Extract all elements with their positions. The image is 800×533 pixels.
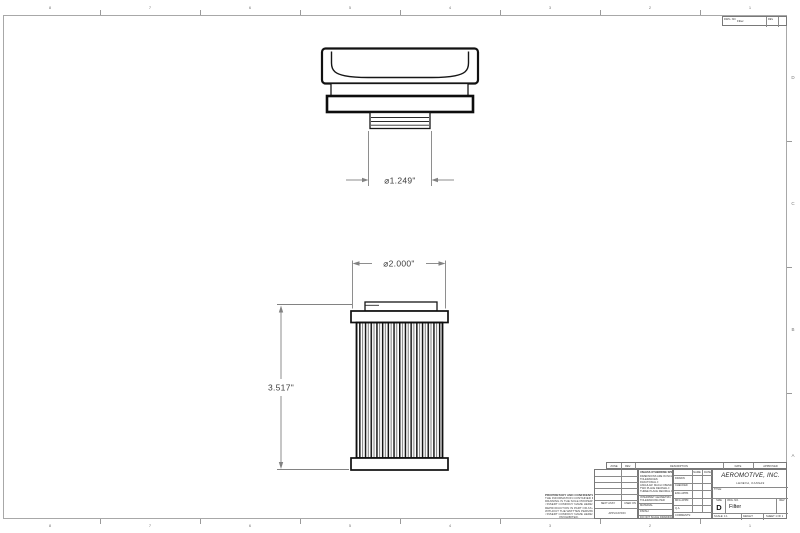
cap-body-outline bbox=[322, 49, 478, 84]
tolerance-line: THREE PLACE DECIMAL ± bbox=[640, 490, 673, 493]
filter-bottom-endcap bbox=[351, 458, 448, 470]
proprietary-line: PROHIBITED. bbox=[545, 516, 593, 519]
size-value: D bbox=[713, 503, 725, 512]
rev-col-approved: APPROVED bbox=[753, 465, 788, 468]
next-assy-label: NEXT ASSY bbox=[595, 502, 621, 505]
rev-col-rev: REV. bbox=[621, 465, 635, 468]
name-header: NAME bbox=[692, 471, 702, 474]
grid-line bbox=[595, 508, 639, 509]
sheet-value: SHEET 1 OF 1 bbox=[766, 515, 783, 518]
cap-diameter-dim-text: ⌀1.249" bbox=[384, 176, 416, 186]
arrowhead bbox=[432, 178, 439, 182]
weight-label: WEIGHT: bbox=[743, 515, 754, 518]
cap-view bbox=[322, 49, 478, 129]
filter-diameter-dim-text: ⌀2.000" bbox=[383, 259, 415, 269]
scale-value: SCALE: 1:1 bbox=[714, 515, 728, 518]
drawing-views-svg: ⌀1.249" ⌀2.000" 3.517" bbox=[0, 0, 800, 533]
dwg-no-value: Filter bbox=[729, 504, 741, 510]
grid-line bbox=[763, 513, 764, 520]
revision-table: ZONE REV. DESCRIPTION DATE APPROVED bbox=[606, 462, 787, 469]
do-not-scale-label: DO NOT SCALE DRAWING bbox=[640, 516, 672, 519]
filter-view bbox=[351, 302, 448, 470]
dwg-no-label: DWG. NO. bbox=[727, 499, 739, 502]
signoff-block: NAME DATE DRAWN CHECKED ENG APPR. MFG AP… bbox=[673, 469, 712, 519]
proprietary-note: PROPRIETARY AND CONFIDENTIAL THE INFORMA… bbox=[545, 494, 593, 519]
application-block: NEXT ASSY USED ON APPLICATION bbox=[594, 469, 638, 519]
filter-top-endcap bbox=[351, 311, 448, 323]
cap-flange bbox=[327, 96, 473, 112]
drawn-label: DRAWN bbox=[675, 477, 685, 480]
comments-label: COMMENTS: bbox=[675, 514, 691, 517]
grid-line bbox=[595, 482, 639, 483]
grid-line bbox=[595, 488, 639, 489]
drawing-sheet: 8 7 6 5 4 3 2 1 8 7 6 5 4 3 2 1 D C B A … bbox=[0, 0, 800, 533]
used-on-label: USED ON bbox=[621, 502, 639, 505]
company-location: LENEXA, KANSAS bbox=[713, 481, 788, 485]
material-label: MATERIAL bbox=[640, 504, 653, 507]
grid-line bbox=[595, 494, 639, 495]
title-label: TITLE: bbox=[714, 488, 722, 491]
arrowhead bbox=[353, 261, 360, 265]
application-label: APPLICATION bbox=[595, 512, 639, 515]
grid-line bbox=[595, 476, 639, 477]
eng-appr-label: ENG APPR. bbox=[675, 492, 689, 495]
filter-pleated-body bbox=[357, 323, 443, 459]
finish-label: FINISH bbox=[640, 510, 649, 513]
arrowhead bbox=[279, 462, 283, 469]
filter-top-step bbox=[365, 302, 437, 311]
grid-line bbox=[713, 487, 788, 488]
arrowhead bbox=[439, 261, 446, 265]
company-name: AEROMOTIVE, INC. bbox=[713, 473, 788, 479]
company-title-block: AEROMOTIVE, INC. LENEXA, KANSAS TITLE: S… bbox=[712, 469, 787, 519]
rev-col-date: DATE bbox=[723, 465, 753, 468]
arrowhead bbox=[279, 306, 283, 313]
grid-line bbox=[595, 500, 639, 501]
tolerancing-per-label: TOLERANCING PER: bbox=[640, 499, 665, 502]
rev-col-zone: ZONE bbox=[607, 465, 621, 468]
qa-label: Q.A. bbox=[675, 507, 680, 510]
rev-col-description: DESCRIPTION bbox=[635, 465, 723, 468]
checked-label: CHECKED bbox=[675, 484, 688, 487]
cap-thread-boss bbox=[370, 113, 430, 129]
rev-label: REV bbox=[776, 499, 788, 502]
filter-height-dim-text: 3.517" bbox=[268, 383, 294, 393]
mfg-appr-label: MFG APPR. bbox=[675, 499, 689, 502]
tolerance-block: UNLESS OTHERWISE SPECIFIED: DIMENSIONS A… bbox=[638, 469, 673, 519]
arrowhead bbox=[362, 178, 369, 182]
cap-groove bbox=[331, 84, 468, 97]
